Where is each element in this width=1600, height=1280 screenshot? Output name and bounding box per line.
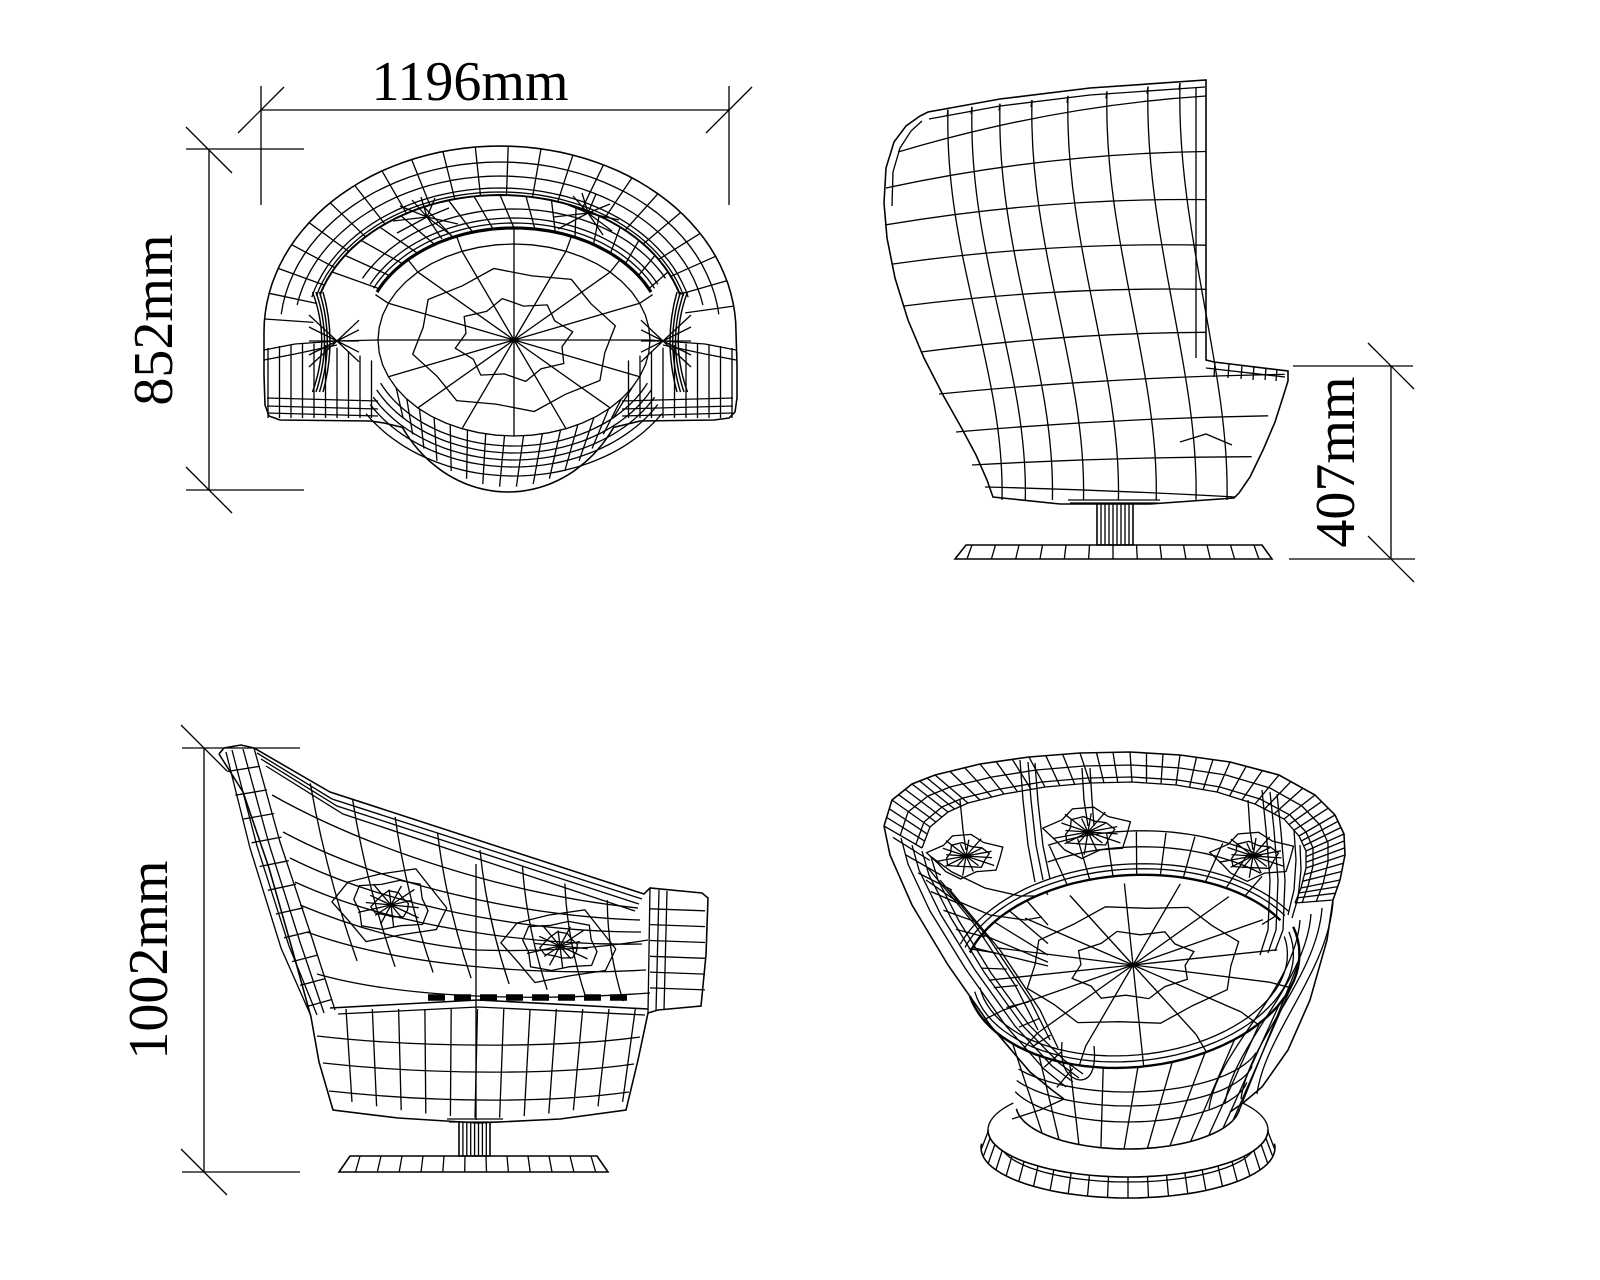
svg-text:852mm: 852mm [123,234,185,405]
svg-text:407mm: 407mm [1305,376,1367,547]
svg-text:1196mm: 1196mm [371,51,568,113]
svg-text:1002mm: 1002mm [118,860,180,1059]
